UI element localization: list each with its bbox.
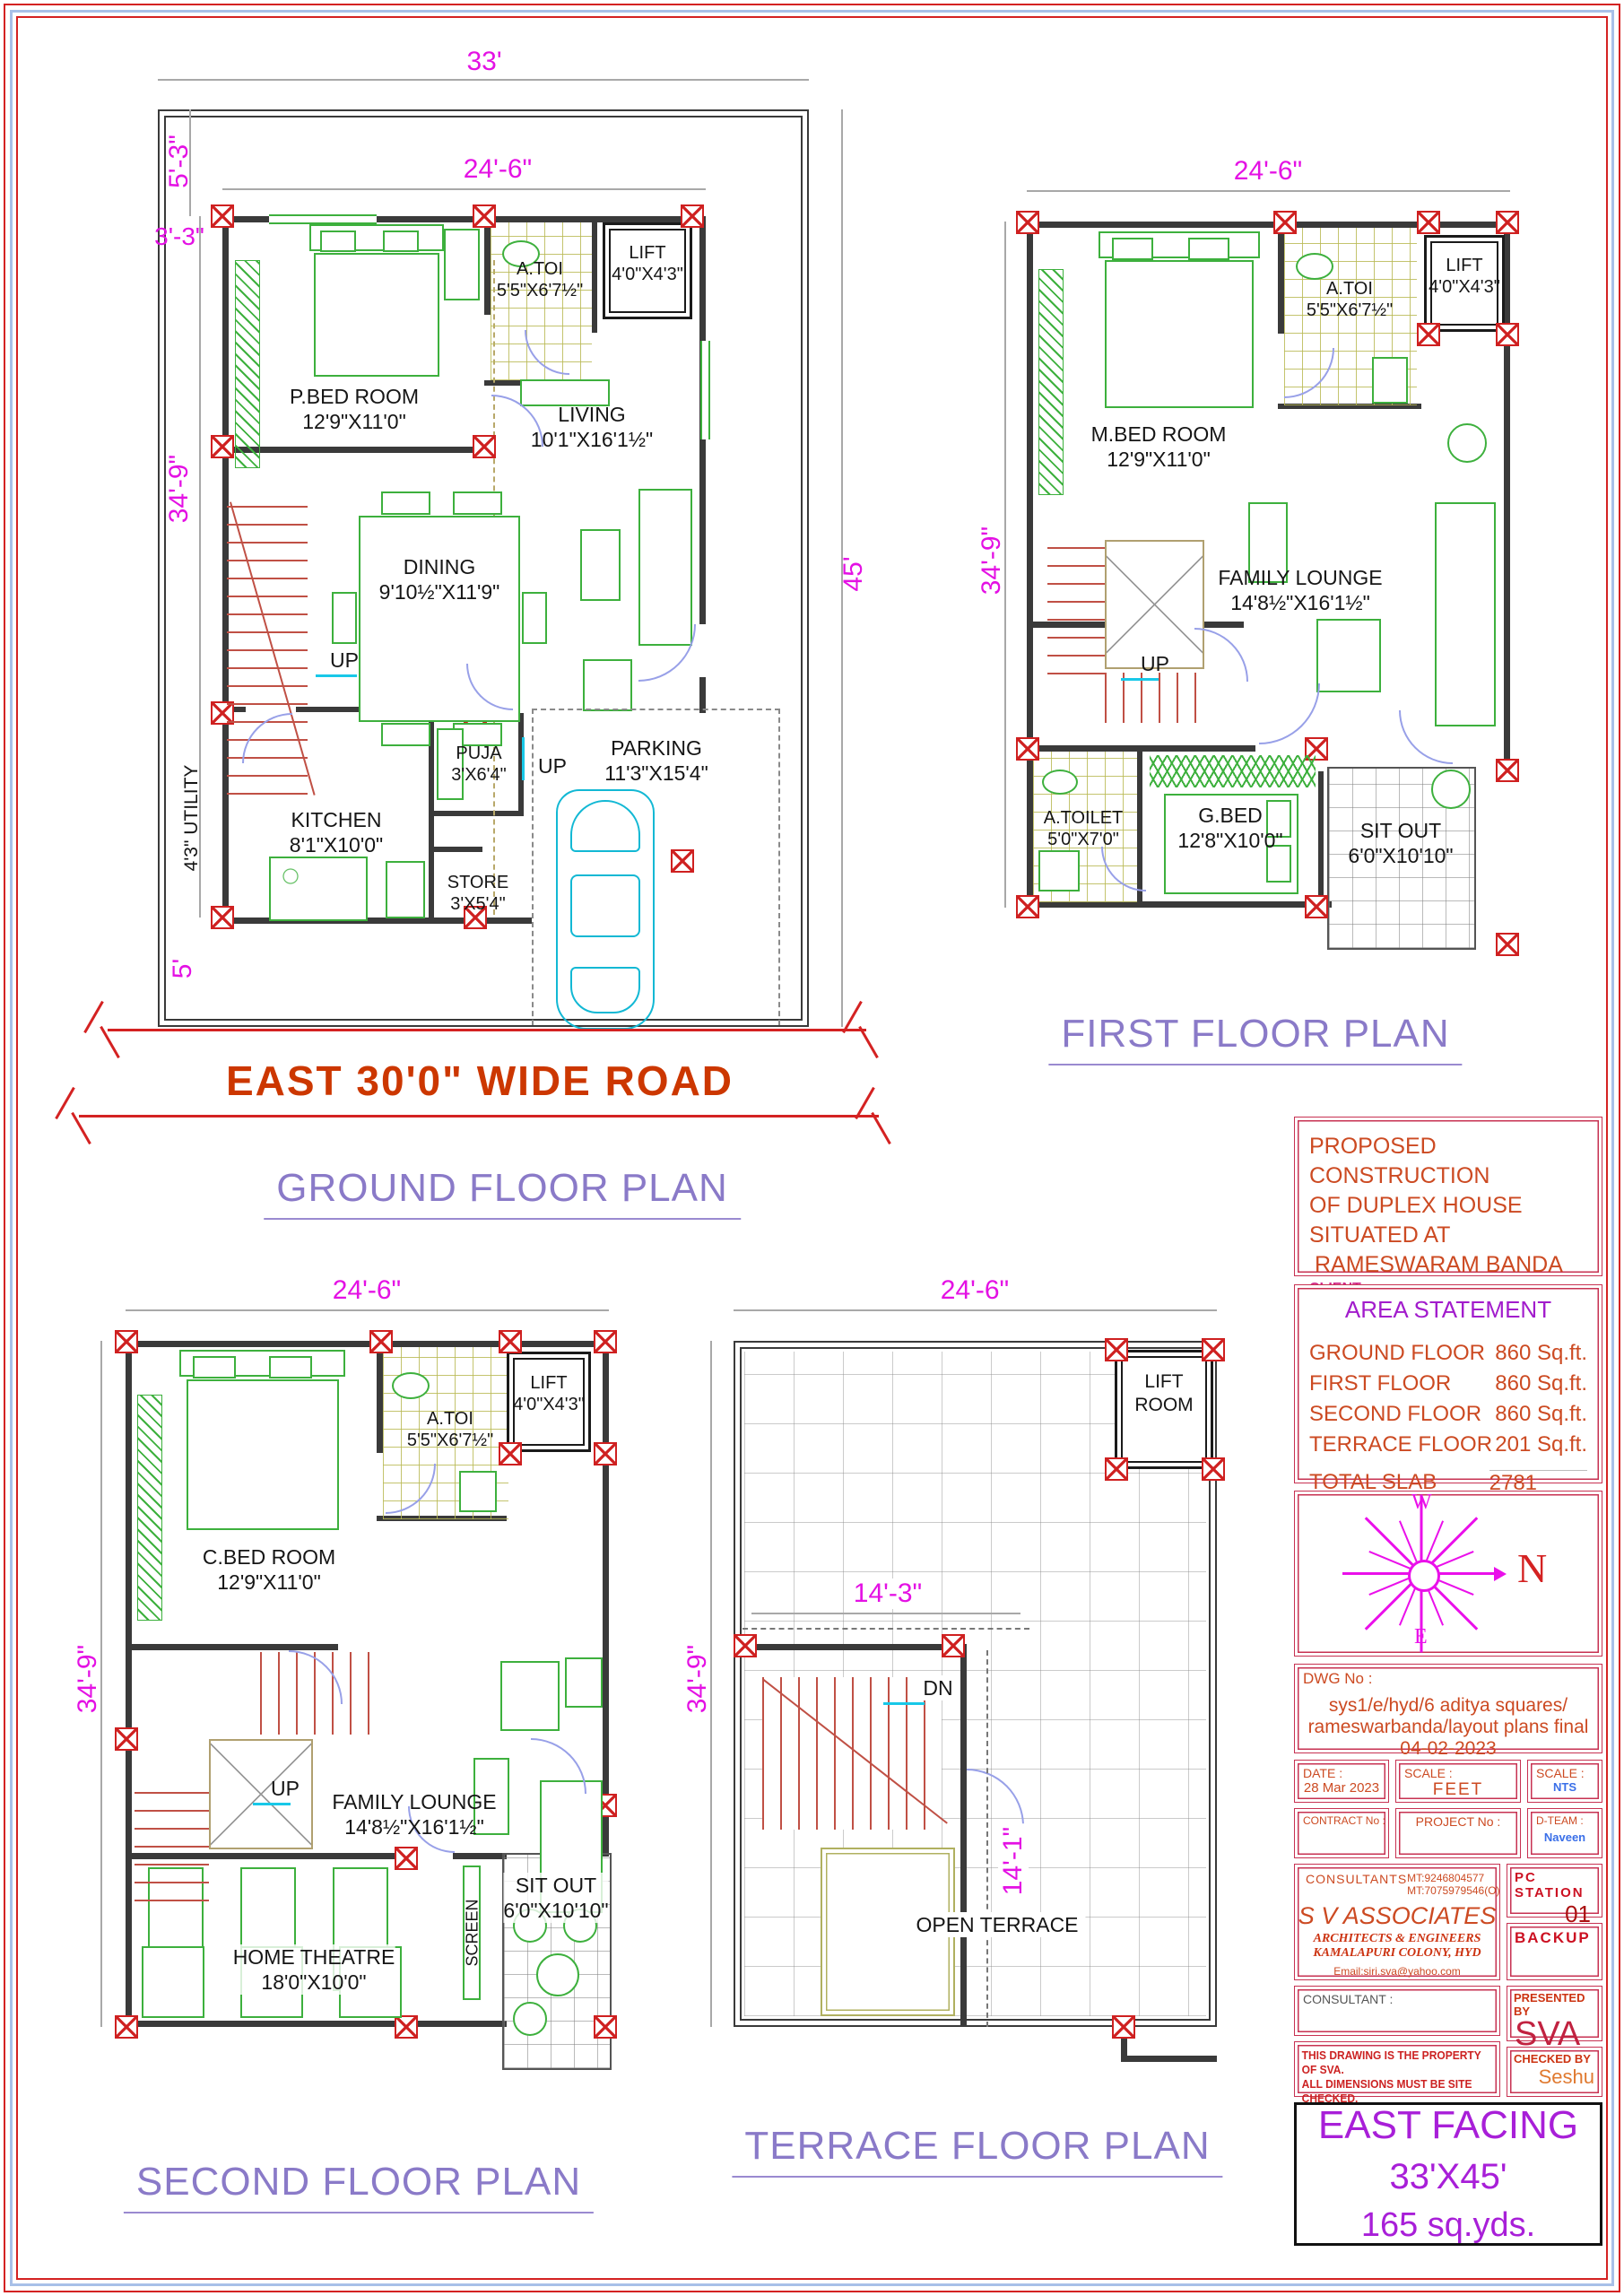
toilet-wc-icon xyxy=(1296,253,1333,280)
titleblock-project-box: PROPOSED CONSTRUCTION OF DUPLEX HOUSE SI… xyxy=(1294,1117,1602,1276)
checked-by-value: Seshu xyxy=(1507,2066,1602,2089)
column-marker xyxy=(681,204,704,228)
bed xyxy=(1105,260,1254,408)
consultant-box: CONSULTANT : xyxy=(1294,1986,1500,2036)
armchair xyxy=(583,659,632,711)
column-marker xyxy=(115,1330,138,1353)
column-marker xyxy=(594,1330,617,1353)
column-marker xyxy=(1202,1338,1225,1361)
sofa xyxy=(638,489,692,646)
round-table xyxy=(536,1953,579,1996)
area-value: 860 Sq.ft. xyxy=(1495,1341,1587,1366)
column-marker xyxy=(1417,211,1440,234)
contract-box: CONTRACT No : xyxy=(1294,1808,1389,1858)
wall-segment xyxy=(126,1341,132,2027)
east-facing-line2: 33'X45' xyxy=(1390,2157,1507,2197)
room-label-mbed: M.BED ROOM 12'9"X11'0" xyxy=(1091,422,1227,472)
open-terrace-label: OPEN TERRACE xyxy=(908,1912,1085,1937)
door-arc xyxy=(1194,628,1248,682)
bath-cabinet xyxy=(459,1471,497,1512)
checked-by-label: CHECKED BY xyxy=(1507,2048,1602,2066)
wall-segment xyxy=(699,677,706,713)
gf-heading: GROUND FLOOR PLAN xyxy=(264,1166,741,1220)
room-label-store: STORE 3'X5'4" xyxy=(447,872,509,915)
firm-address: KAMALAPURI COLONY, HYD xyxy=(1295,1946,1499,1961)
column-marker xyxy=(1016,211,1039,234)
road-line xyxy=(108,1029,866,1031)
room-label-atoi: A.TOI 5'5"X6'7½" xyxy=(497,258,583,301)
column-marker xyxy=(1016,737,1039,761)
tf-heading: TERRACE FLOOR PLAN xyxy=(732,2124,1222,2178)
drawing-sheet: UP UP P.BED ROOM 12'9"X11'0" A.TOI 5'5"X… xyxy=(0,0,1624,2296)
shower-tray xyxy=(1038,850,1080,891)
door-arc xyxy=(531,1738,586,1794)
column-marker xyxy=(499,1330,522,1353)
wall-segment xyxy=(743,1644,967,1650)
area-row: FIRST FLOOR860 Sq.ft. xyxy=(1295,1369,1602,1399)
dim-24-6: 24'-6" xyxy=(333,1275,401,1306)
wall-segment xyxy=(1027,901,1332,908)
column-marker xyxy=(1305,895,1328,918)
door-arc xyxy=(1399,710,1453,764)
column-marker xyxy=(1496,323,1519,346)
dim-34-9: 34'-9" xyxy=(73,1645,103,1713)
wall-art xyxy=(565,1657,603,1708)
room-label-kitchen: KITCHEN 8'1"X10'0" xyxy=(290,807,383,857)
wall-segment xyxy=(1278,222,1284,334)
dim-14-1: 14'-1" xyxy=(998,1823,1029,1899)
room-label-atoi: A.TOI 5'5"X6'7½" xyxy=(1307,278,1393,321)
column-marker xyxy=(1112,2015,1135,2039)
date-value: 28 Mar 2023 xyxy=(1295,1780,1388,1796)
car-roof xyxy=(570,874,640,937)
dteam-value: Naveen xyxy=(1528,1831,1602,1844)
wardrobe xyxy=(1038,269,1064,495)
column-marker xyxy=(115,2015,138,2039)
wall-segment xyxy=(222,447,484,453)
column-marker xyxy=(1417,323,1440,346)
dwg-number-line2: rameswarbanda/layout plans final 04-02-2… xyxy=(1295,1717,1602,1760)
pc-station-label: PC STATION xyxy=(1507,1865,1602,1900)
column-marker xyxy=(211,435,234,458)
room-label-parking: PARKING 11'3"X15'4" xyxy=(604,735,708,786)
project-box: PROJECT No : xyxy=(1395,1808,1521,1858)
road-break-icon xyxy=(872,1098,875,1134)
wall-segment xyxy=(603,1341,609,1857)
room-label-cbed: C.BED ROOM 12'9"X11'0" xyxy=(203,1544,335,1595)
wall-segment xyxy=(429,811,524,816)
up-arrow-line xyxy=(1121,678,1159,681)
terrace-dashed-line xyxy=(743,1628,1029,1630)
column-marker xyxy=(211,204,234,228)
ff-stairs xyxy=(1047,538,1105,674)
dim-34-9: 34'-9" xyxy=(977,526,1007,595)
plant-icon xyxy=(1431,770,1471,809)
presented-by-box: PRESENTED BY SVA xyxy=(1507,1986,1602,2041)
wall-segment xyxy=(126,1341,609,1347)
project-line: PROPOSED CONSTRUCTION xyxy=(1309,1132,1602,1191)
dim-line xyxy=(158,79,809,81)
bed-pillow xyxy=(269,1356,312,1378)
area-statement-title: AREA STATEMENT xyxy=(1295,1296,1602,1324)
road-break-icon xyxy=(72,1098,75,1134)
dresser xyxy=(444,229,480,300)
column-marker xyxy=(115,1727,138,1751)
column-marker xyxy=(395,1847,418,1870)
column-marker xyxy=(211,906,234,929)
road-break-icon xyxy=(859,1012,863,1048)
gf-up-label: UP xyxy=(330,648,359,673)
toilet-wc-icon xyxy=(1042,770,1078,795)
room-label-atoilet: A.TOILET 5'0"X7'0" xyxy=(1044,807,1124,850)
gf-up2-label: UP xyxy=(538,753,567,778)
up-arrow-line xyxy=(253,1803,291,1805)
room-label-sitout: SIT OUT 6'0"X10'10" xyxy=(503,1873,608,1923)
east-facing-box: EAST FACING 33'X45' 165 sq.yds. xyxy=(1294,2102,1602,2246)
door-arc xyxy=(1259,683,1320,744)
wall-segment xyxy=(429,847,482,852)
compass-north-arrow-icon xyxy=(1494,1567,1507,1581)
east-facing-line3: 165 sq.yds. xyxy=(1361,2206,1535,2245)
wardrobe xyxy=(235,260,260,468)
scale-nts-box: SCALE : NTS xyxy=(1527,1760,1602,1803)
sf-heading: SECOND FLOOR PLAN xyxy=(124,2160,594,2213)
room-name: P.BED ROOM xyxy=(290,384,419,409)
dim-34-9: 34'-9" xyxy=(164,455,195,523)
window xyxy=(700,341,710,439)
bath-cabinet xyxy=(1372,357,1408,404)
window xyxy=(269,214,377,224)
dining-chair xyxy=(381,491,430,515)
bed-pillow xyxy=(1188,238,1229,260)
column-marker xyxy=(594,1442,617,1465)
presented-by-value: SVA xyxy=(1507,2018,1602,2050)
drawing-note-box: THIS DRAWING IS THE PROPERTY OF SVA. ALL… xyxy=(1294,2041,1500,2097)
dwg-label: DWG No : xyxy=(1295,1665,1602,1688)
bed xyxy=(314,253,439,377)
area-statement-box: AREA STATEMENT GROUND FLOOR860 Sq.ft. FI… xyxy=(1294,1284,1602,1483)
room-label-dining: DINING 9'10½"X11'9" xyxy=(379,554,500,604)
toilet-wc-icon xyxy=(392,1372,430,1399)
compass-east-label: E xyxy=(1414,1625,1428,1649)
consultants-label: CONSULTANTS xyxy=(1306,1872,1407,1897)
column-marker xyxy=(1273,211,1297,234)
dteam-box: D-TEAM : Naveen xyxy=(1527,1808,1602,1858)
wall-segment xyxy=(1504,222,1510,778)
wall-segment xyxy=(1318,771,1324,906)
wall-segment xyxy=(1121,2056,1217,2062)
column-marker xyxy=(942,1634,965,1657)
room-label-lift: LIFT 4'0"X4'3" xyxy=(1429,255,1500,298)
east-facing-line1: EAST FACING xyxy=(1318,2103,1578,2148)
room-label-liftroom: LIFT ROOM xyxy=(1134,1370,1193,1417)
phone2: MT:7075979546(O) xyxy=(1407,1884,1499,1897)
area-row: SECOND FLOOR860 Sq.ft. xyxy=(1295,1399,1602,1430)
up-text: UP xyxy=(330,648,359,673)
road-line xyxy=(79,1115,879,1118)
chair xyxy=(513,2002,547,2036)
backup-label: BACKUP xyxy=(1507,1924,1602,1947)
dim-34-9: 34'-9" xyxy=(682,1645,713,1713)
sf-stairs xyxy=(135,1785,209,1901)
wall-segment xyxy=(377,1341,383,1453)
column-marker xyxy=(594,2015,617,2039)
area-row: TERRACE FLOOR201 Sq.ft. xyxy=(1295,1430,1602,1460)
dining-chair xyxy=(522,592,547,644)
dim-line xyxy=(126,1309,609,1311)
dim-24-6: 24'-6" xyxy=(941,1275,1009,1306)
wardrobe xyxy=(137,1395,162,1621)
column-marker xyxy=(1496,933,1519,956)
scale-feet-value: FEET xyxy=(1396,1780,1520,1800)
dwg-number-line1: sys1/e/hyd/6 aditya squares/ xyxy=(1295,1695,1602,1717)
bed-pillow xyxy=(383,230,419,252)
room-label-atoi: A.TOI 5'5"X6'7½" xyxy=(407,1408,493,1451)
dwg-box: DWG No : sys1/e/hyd/6 aditya squares/ ra… xyxy=(1294,1664,1602,1753)
bed-pillow xyxy=(1112,238,1153,260)
dim-5ft: 5' xyxy=(168,959,198,978)
car-rear xyxy=(570,967,640,1013)
dim-3-3: 3'-3" xyxy=(154,222,204,251)
dim-24-6: 24'-6" xyxy=(464,154,532,185)
wall-segment xyxy=(1027,745,1255,752)
kitchen-sink xyxy=(386,861,425,918)
wall-segment xyxy=(132,1644,338,1650)
room-label-lift: LIFT 4'0"X4'3" xyxy=(513,1372,585,1415)
wall-segment xyxy=(592,216,597,333)
phone1: MT:9246804577 xyxy=(1407,1872,1499,1884)
road-label: EAST 30'0" WIDE ROAD xyxy=(226,1057,734,1105)
column-marker xyxy=(1105,1457,1128,1481)
compass-west-label: W xyxy=(1411,1491,1432,1515)
dim-line xyxy=(1027,190,1510,192)
bed xyxy=(187,1379,339,1530)
area-row: GROUND FLOOR860 Sq.ft. xyxy=(1295,1338,1602,1369)
dim-45ft: 45' xyxy=(838,556,869,591)
room-label-living: LIVING 10'1"X16'1½" xyxy=(531,402,653,452)
dining-chair xyxy=(332,592,357,644)
stair-landing-box xyxy=(1105,540,1204,669)
bed-pillow xyxy=(193,1356,236,1378)
room-label-theatre: HOME THEATRE 18'0"X10'0" xyxy=(233,1944,395,1995)
room-label-pbed: P.BED ROOM 12'9"X11'0" xyxy=(290,384,419,434)
armchair xyxy=(1316,619,1381,692)
dim-5-3: 5'-3" xyxy=(164,135,195,188)
planter-hedge xyxy=(1150,755,1316,787)
wall-segment xyxy=(1027,222,1033,908)
road-break-icon xyxy=(100,1012,104,1048)
column-marker xyxy=(1105,1338,1128,1361)
column-marker xyxy=(473,204,496,228)
column-marker xyxy=(369,1330,393,1353)
scale-feet-box: SCALE : FEET xyxy=(1395,1760,1521,1803)
column-marker xyxy=(1202,1457,1225,1481)
room-label-puja: PUJA 3'X6'4" xyxy=(451,743,506,786)
column-marker xyxy=(395,2015,418,2039)
checked-by-box: CHECKED BY Seshu xyxy=(1507,2047,1602,2097)
artwork-stand xyxy=(580,529,621,601)
date-box: DATE : 28 Mar 2023 xyxy=(1294,1760,1389,1803)
wall-segment xyxy=(126,2021,507,2027)
bed-pillow xyxy=(320,230,356,252)
terrace-dashed-line xyxy=(986,1650,988,2027)
dining-chair xyxy=(453,491,502,515)
stove xyxy=(269,857,368,921)
area-label: GROUND FLOOR xyxy=(1309,1341,1485,1366)
room-label-lounge: FAMILY LOUNGE 14'8½"X16'1½" xyxy=(1218,565,1382,615)
wall-segment xyxy=(453,1853,507,1859)
dining-chair xyxy=(381,723,430,746)
plant-icon xyxy=(1447,423,1487,463)
dim-33ft: 33' xyxy=(466,47,501,77)
entry-step-line xyxy=(522,737,525,780)
dim-line xyxy=(751,1613,1020,1614)
screen-label: SCREEN xyxy=(464,1899,482,1966)
column-marker xyxy=(1016,895,1039,918)
ff-up-label: UP xyxy=(1141,651,1169,676)
room-label-lift: LIFT 4'0"X4'3" xyxy=(612,242,683,285)
project-line: RAMESWARAM BANDA xyxy=(1309,1250,1602,1280)
column-marker xyxy=(1496,759,1519,782)
up-arrow-line xyxy=(316,674,357,677)
firm-subtitle: ARCHITECTS & ENGINEERS xyxy=(1295,1932,1499,1946)
armchair xyxy=(500,1661,560,1731)
room-label-lounge: FAMILY LOUNGE 14'8½"X16'1½" xyxy=(332,1789,496,1839)
up-text: UP xyxy=(538,753,567,778)
recliner xyxy=(142,1946,204,2018)
pc-station-box: PC STATION 01 xyxy=(1507,1864,1602,1918)
column-marker xyxy=(1496,211,1519,234)
dim-line xyxy=(222,188,706,190)
consultants-box: CONSULTANTS MT:9246804577 MT:7075979546(… xyxy=(1294,1864,1500,1980)
column-marker xyxy=(734,1634,757,1657)
tf-dn-label: DN xyxy=(919,1675,956,1700)
sofa xyxy=(1435,502,1496,726)
project-line: SITUATED AT xyxy=(1309,1221,1602,1250)
dim-line xyxy=(199,216,201,918)
backup-box: BACKUP xyxy=(1507,1923,1602,1980)
sf-up-label: UP xyxy=(271,1776,300,1801)
note-line: THIS DRAWING IS THE PROPERTY OF SVA. xyxy=(1302,2048,1486,2077)
room-label-sitout: SIT OUT 6'0"X10'10" xyxy=(1348,818,1453,868)
project-line: OF DUPLEX HOUSE xyxy=(1309,1191,1602,1221)
firm-email: Email:siri.sva@yahoo.com xyxy=(1295,1965,1499,1978)
room-size: 12'9"X11'0" xyxy=(290,409,419,434)
compass-north-label: N xyxy=(1517,1544,1547,1592)
column-marker xyxy=(499,1442,522,1465)
wall-segment xyxy=(484,216,491,315)
dn-arrow-line xyxy=(883,1702,925,1705)
scale-nts-value: NTS xyxy=(1528,1780,1602,1794)
presented-by-label: PRESENTED BY xyxy=(1507,1987,1602,2018)
firm-name: S V ASSOCIATES xyxy=(1295,1902,1499,1930)
ff-heading: FIRST FLOOR PLAN xyxy=(1048,1012,1462,1065)
wall-segment xyxy=(960,1644,967,2027)
dim-14-3: 14'-3" xyxy=(848,1578,927,1609)
room-label-gbed: G.BED 12'8"X10'0" xyxy=(1177,803,1282,853)
dim-24-6: 24'-6" xyxy=(1234,156,1302,187)
dim-line xyxy=(734,1309,1217,1311)
